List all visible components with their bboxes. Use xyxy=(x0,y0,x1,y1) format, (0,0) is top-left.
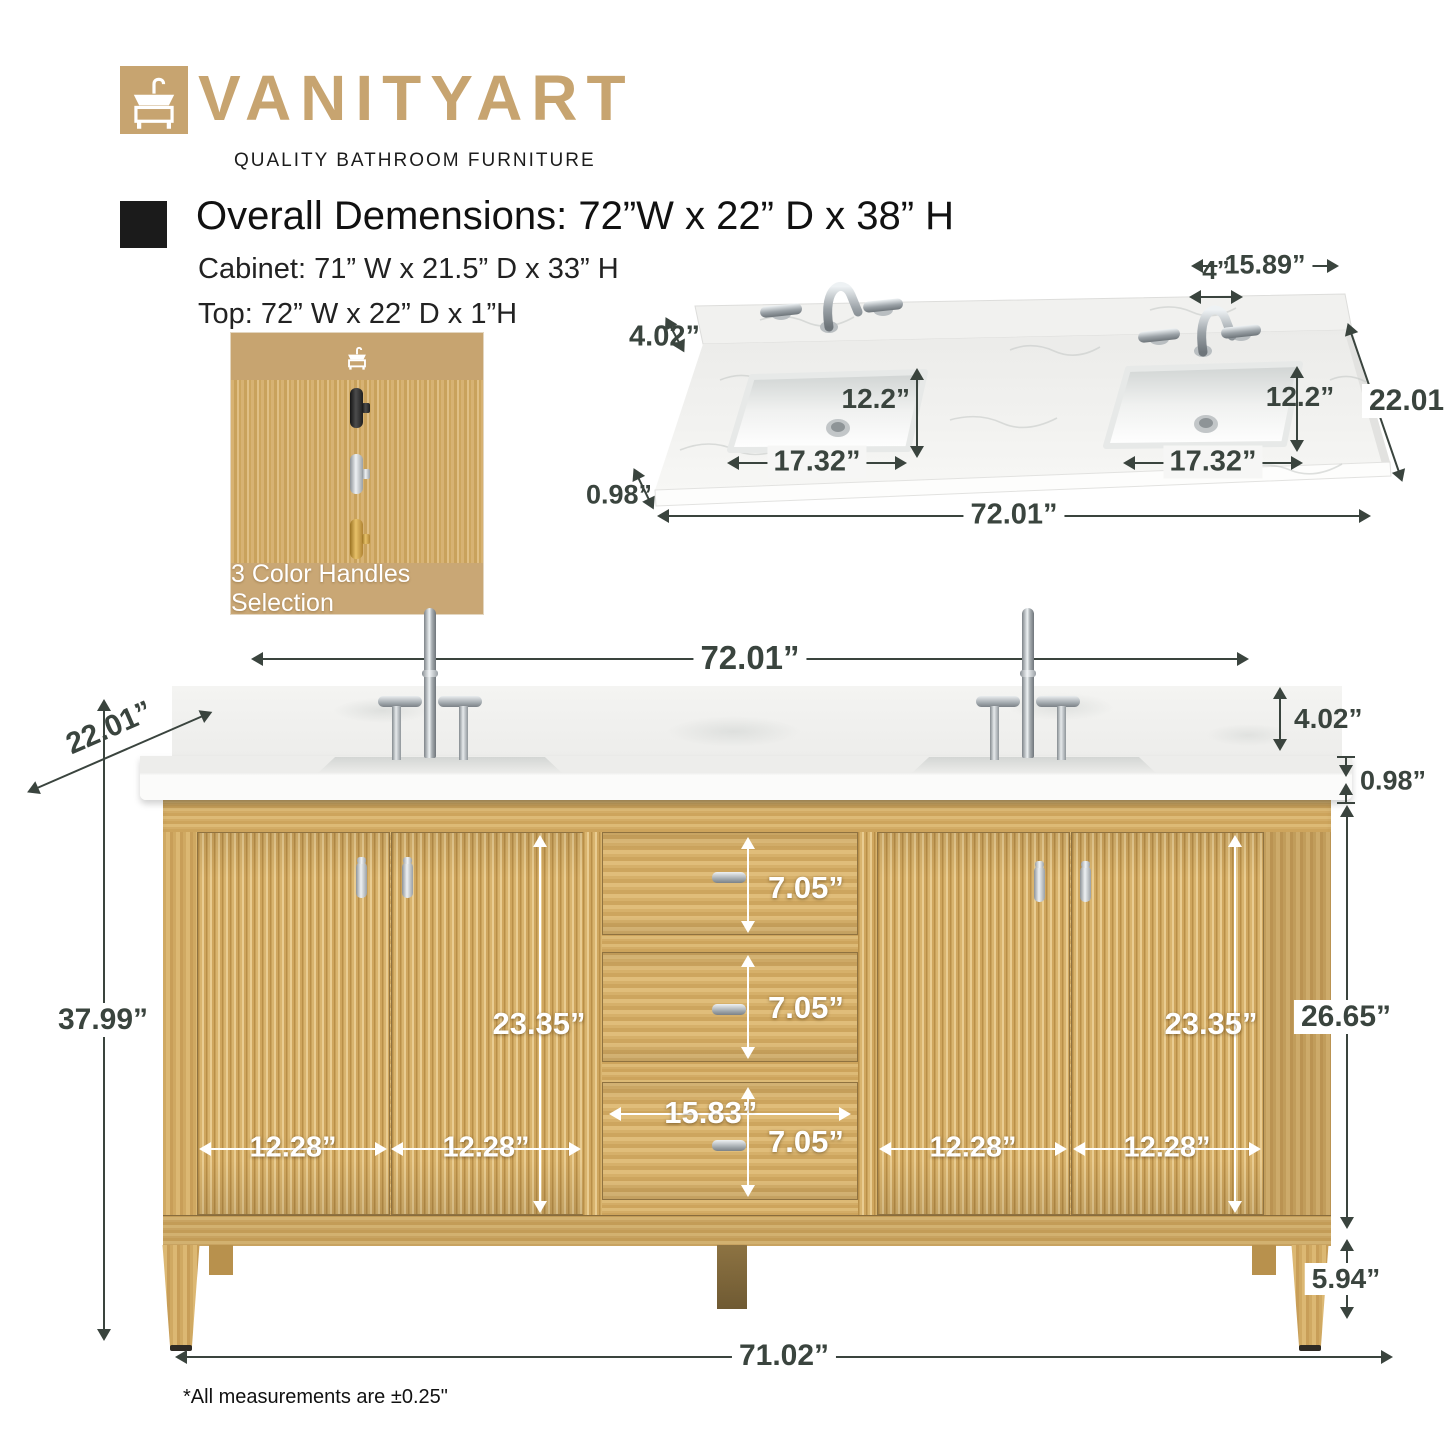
faucet-handle-post xyxy=(392,706,401,760)
dim-label: 0.98” xyxy=(1360,766,1426,797)
center-stile-left xyxy=(583,832,602,1215)
dim-label: 15.89” xyxy=(1217,250,1312,281)
arrowhead xyxy=(910,446,924,458)
arrowhead xyxy=(1339,783,1353,795)
wood-sample xyxy=(231,380,483,563)
arrowhead xyxy=(375,1142,387,1156)
brand-tagline: QUALITY BATHROOM FURNITURE xyxy=(234,150,596,172)
bottom-rail xyxy=(163,1215,1331,1246)
dim-line xyxy=(1200,296,1232,298)
door-3-knob xyxy=(1034,866,1045,902)
dim-label: 71.02” xyxy=(732,1339,836,1373)
vanity-sink-icon xyxy=(120,66,188,134)
drawer-2-knob xyxy=(712,1004,746,1015)
heading-bullet xyxy=(120,201,167,248)
dim-label: 7.05” xyxy=(768,1124,844,1160)
dim-label: 72.01” xyxy=(963,499,1064,532)
door-1-knob xyxy=(356,862,367,898)
arrowhead xyxy=(1359,509,1371,523)
leg-foot xyxy=(1299,1345,1321,1351)
counter-front-view xyxy=(140,756,1352,800)
dim-label: 15.83” xyxy=(664,1095,757,1131)
arrowhead xyxy=(839,1107,851,1121)
dim-label: 23.35” xyxy=(1164,1006,1257,1042)
center-stile-right xyxy=(858,832,877,1215)
arrowhead xyxy=(741,921,755,933)
dim-label: 4” xyxy=(1202,255,1229,286)
dim-line xyxy=(916,379,918,447)
door-2-knob xyxy=(402,862,413,898)
faucet-spout xyxy=(424,608,436,758)
front-leg-left xyxy=(160,1245,202,1347)
drawer-3-knob xyxy=(712,1140,746,1151)
arrowhead xyxy=(1340,1217,1354,1229)
arrowhead xyxy=(1327,259,1339,273)
front-leg-right xyxy=(1289,1245,1331,1347)
dim-label: 12.2” xyxy=(842,383,911,415)
cabinet-left-stile xyxy=(163,832,197,1215)
dim-label: 0.98” xyxy=(586,480,652,511)
handle-option-chrome xyxy=(350,454,363,494)
dim-label: 17.32” xyxy=(1163,446,1262,479)
drawer-1-knob xyxy=(712,872,746,883)
arrowhead xyxy=(1339,765,1353,777)
arrowhead xyxy=(533,1201,547,1213)
arrowhead xyxy=(1381,1350,1393,1364)
arrowhead xyxy=(1055,1142,1067,1156)
dim-label: 12.28” xyxy=(1123,1132,1210,1165)
arrowhead xyxy=(569,1142,581,1156)
handle-option-black xyxy=(350,388,363,428)
arrowhead xyxy=(1249,1142,1261,1156)
faucet-handle-post xyxy=(990,706,999,760)
dim-line xyxy=(747,966,749,1048)
dim-label: 37.99” xyxy=(51,1003,155,1037)
dim-label: 12.28” xyxy=(442,1132,529,1165)
arrowhead xyxy=(1237,652,1249,666)
brand-name: VANITYART xyxy=(198,64,635,132)
faucet-handle-post xyxy=(1057,706,1066,760)
product-dimension-sheet: VANITYART QUALITY BATHROOM FURNITURE Ove… xyxy=(0,0,1445,1445)
swatch-caption: 3 Color Handles Selection xyxy=(231,563,483,614)
dim-label: 12.28” xyxy=(929,1132,1016,1165)
arrowhead xyxy=(1273,739,1287,751)
handle-swatch-card: 3 Color Handles Selection xyxy=(231,333,483,614)
brand-logo xyxy=(120,66,188,134)
arrowhead xyxy=(895,456,907,470)
arrowhead xyxy=(1231,290,1243,304)
dim-label: 4.02” xyxy=(1294,703,1363,735)
dim-label: 26.65” xyxy=(1294,1000,1398,1034)
dim-label: 5.94” xyxy=(1305,1263,1388,1295)
arrowhead xyxy=(741,1185,755,1197)
back-leg-left xyxy=(209,1245,233,1275)
right-faucet-front xyxy=(976,608,1080,760)
overall-dimensions: Overall Demensions: 72”W x 22” D x 38” H xyxy=(196,194,954,239)
dim-line xyxy=(747,848,749,922)
dim-tick xyxy=(1337,802,1355,804)
top-dimensions: Top: 72” W x 22” D x 1”H xyxy=(198,298,517,331)
vanity-sink-icon xyxy=(342,342,372,372)
measurement-footnote: *All measurements are ±0.25" xyxy=(183,1386,448,1409)
backsplash-front-view xyxy=(172,686,1342,758)
center-leg xyxy=(717,1245,747,1309)
arrowhead xyxy=(24,781,41,799)
arrowhead xyxy=(1228,1201,1242,1213)
faucet-handle-post xyxy=(459,706,468,760)
swatch-header xyxy=(231,333,483,380)
dim-label: 17.32” xyxy=(767,446,866,479)
dim-label: 72.01” xyxy=(693,639,806,677)
faucet-spout xyxy=(1022,608,1034,758)
arrowhead xyxy=(741,1047,755,1059)
back-leg-right xyxy=(1252,1245,1276,1275)
arrowhead xyxy=(1340,1307,1354,1319)
dim-label: 23.35” xyxy=(492,1006,585,1042)
cabinet-dimensions: Cabinet: 71” W x 21.5” D x 33” H xyxy=(198,253,619,286)
door-4-knob xyxy=(1080,866,1091,902)
arrowhead xyxy=(97,1329,111,1341)
dim-label: 7.05” xyxy=(768,990,844,1026)
arrowhead xyxy=(1291,456,1303,470)
dim-label: 7.05” xyxy=(768,870,844,906)
dim-line xyxy=(1279,698,1281,740)
dim-label: 12.2” xyxy=(1266,381,1335,413)
arrowhead xyxy=(1290,440,1304,452)
dim-label: 22.01” xyxy=(1362,384,1445,418)
dim-label: 12.28” xyxy=(249,1132,336,1165)
dim-label: 4.02” xyxy=(629,321,700,354)
left-faucet-front xyxy=(378,608,482,760)
handle-option-gold xyxy=(350,519,363,559)
